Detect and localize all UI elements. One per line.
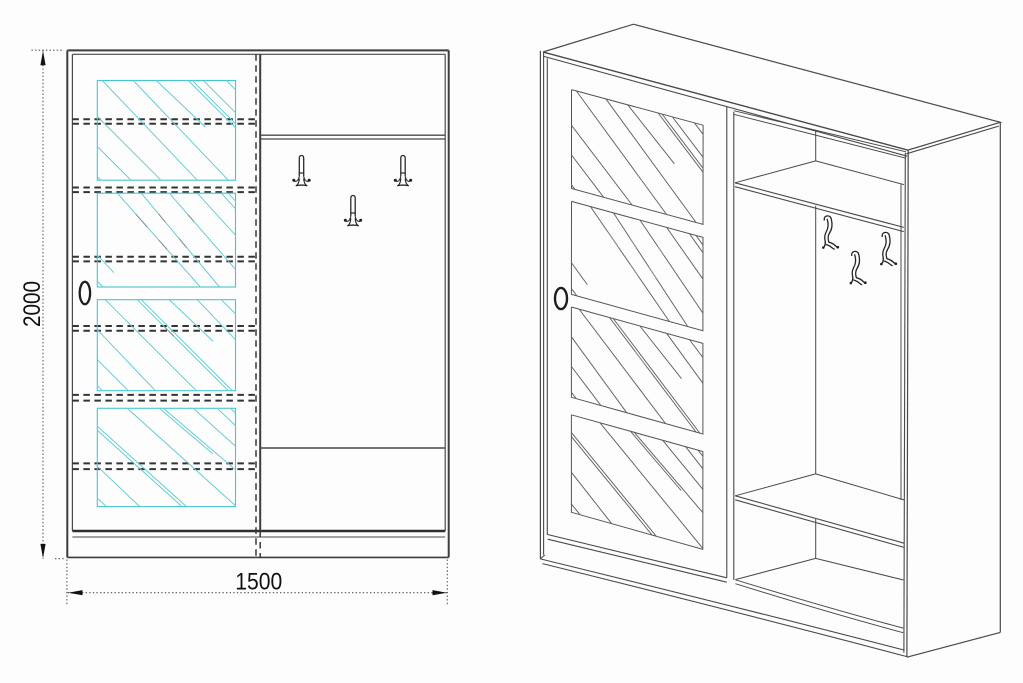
svg-text:1500: 1500 xyxy=(235,569,282,596)
svg-text:2000: 2000 xyxy=(19,281,46,327)
